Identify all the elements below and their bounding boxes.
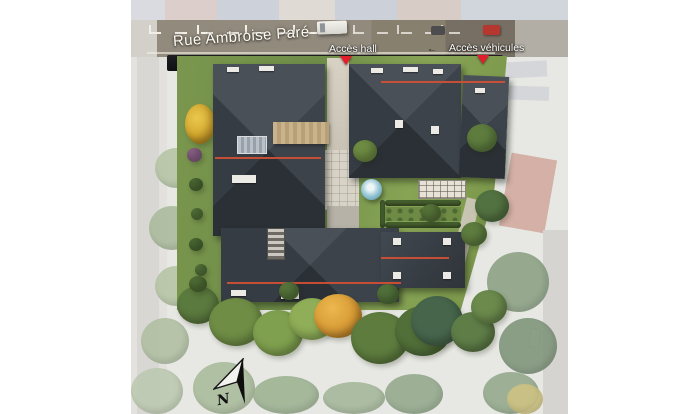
skylight: [431, 126, 439, 134]
shrub: [195, 264, 207, 276]
building-roof-bottom: [221, 228, 399, 302]
parking-bay-markings: [353, 25, 471, 34]
roof-ridge-line: [381, 81, 505, 83]
tree: [471, 290, 507, 324]
access-hall-label: Accès hall: [329, 43, 377, 55]
roof-ridge-line: [381, 257, 449, 259]
shrub: [189, 178, 203, 191]
compass-north-label: N: [215, 391, 231, 409]
faded-road-right: [543, 230, 568, 414]
shrub: [377, 284, 399, 304]
hedge: [385, 200, 461, 206]
street-fade-overlay: [131, 20, 157, 57]
tree: [323, 382, 385, 414]
roof-ridge-line: [227, 282, 401, 284]
curb-line: [147, 52, 495, 54]
chimney: [433, 69, 443, 74]
faded-surroundings-top: [131, 0, 568, 22]
chimney: [259, 66, 274, 71]
shrub: [187, 148, 202, 162]
chimney: [403, 67, 418, 72]
parasol: [361, 179, 382, 200]
cobble-storage-strip: [418, 180, 466, 199]
tree: [421, 204, 441, 222]
dormer: [232, 175, 256, 183]
tree: [131, 368, 183, 414]
skylight: [443, 272, 451, 279]
tree: [461, 222, 487, 246]
skylight: [443, 238, 451, 245]
garden-path: [327, 58, 349, 154]
chimney: [371, 68, 383, 73]
street-direction-arrow-icon: ←: [426, 43, 437, 55]
dormer: [231, 290, 246, 296]
screenshot-canvas: Rue Ambroise Paré Accès hall ← Accès véh…: [0, 0, 700, 414]
balcony-structure: [267, 228, 285, 260]
tree: [475, 190, 509, 222]
tree: [253, 376, 319, 414]
skylight: [393, 238, 401, 245]
dark-car: [431, 26, 445, 35]
tree: [185, 104, 215, 144]
glass-canopy: [237, 136, 267, 154]
tree: [141, 318, 189, 364]
tree: [499, 318, 557, 374]
access-vehicles-marker-icon: [477, 55, 489, 64]
building-roof-left: [213, 64, 325, 236]
tree: [467, 124, 497, 152]
chimney: [475, 88, 485, 93]
wood-deck: [273, 122, 329, 144]
access-hall-marker-icon: [340, 56, 352, 65]
white-van: [317, 20, 347, 34]
faded-roof: [499, 153, 557, 234]
chimney: [227, 67, 239, 72]
red-car: [483, 25, 500, 35]
tree: [353, 140, 377, 162]
tree: [385, 374, 443, 414]
tree: [507, 384, 543, 414]
shrub: [191, 208, 203, 220]
shrub: [189, 238, 203, 251]
shrub: [189, 276, 207, 292]
roof-ridge-line: [215, 157, 321, 159]
site-plan-photo: Rue Ambroise Paré Accès hall ← Accès véh…: [131, 0, 568, 414]
skylight: [393, 272, 401, 279]
shrub: [279, 282, 299, 300]
access-vehicles-label: Accès véhicules: [449, 42, 524, 54]
skylight: [395, 120, 403, 128]
hedge: [385, 222, 461, 228]
hedge: [380, 200, 385, 228]
